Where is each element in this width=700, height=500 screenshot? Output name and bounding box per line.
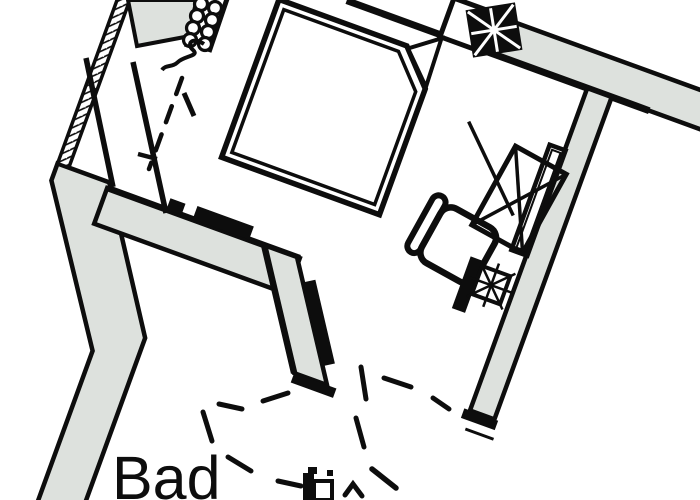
shaft-symbol-icon (466, 2, 523, 57)
door-dot (327, 470, 333, 476)
room-label-bad: Bad (112, 444, 221, 500)
door-panel (314, 481, 332, 500)
floor-plan-page: Bad (0, 0, 700, 500)
floor-plan-canvas: Bad (0, 0, 700, 500)
door-tick (308, 467, 317, 474)
